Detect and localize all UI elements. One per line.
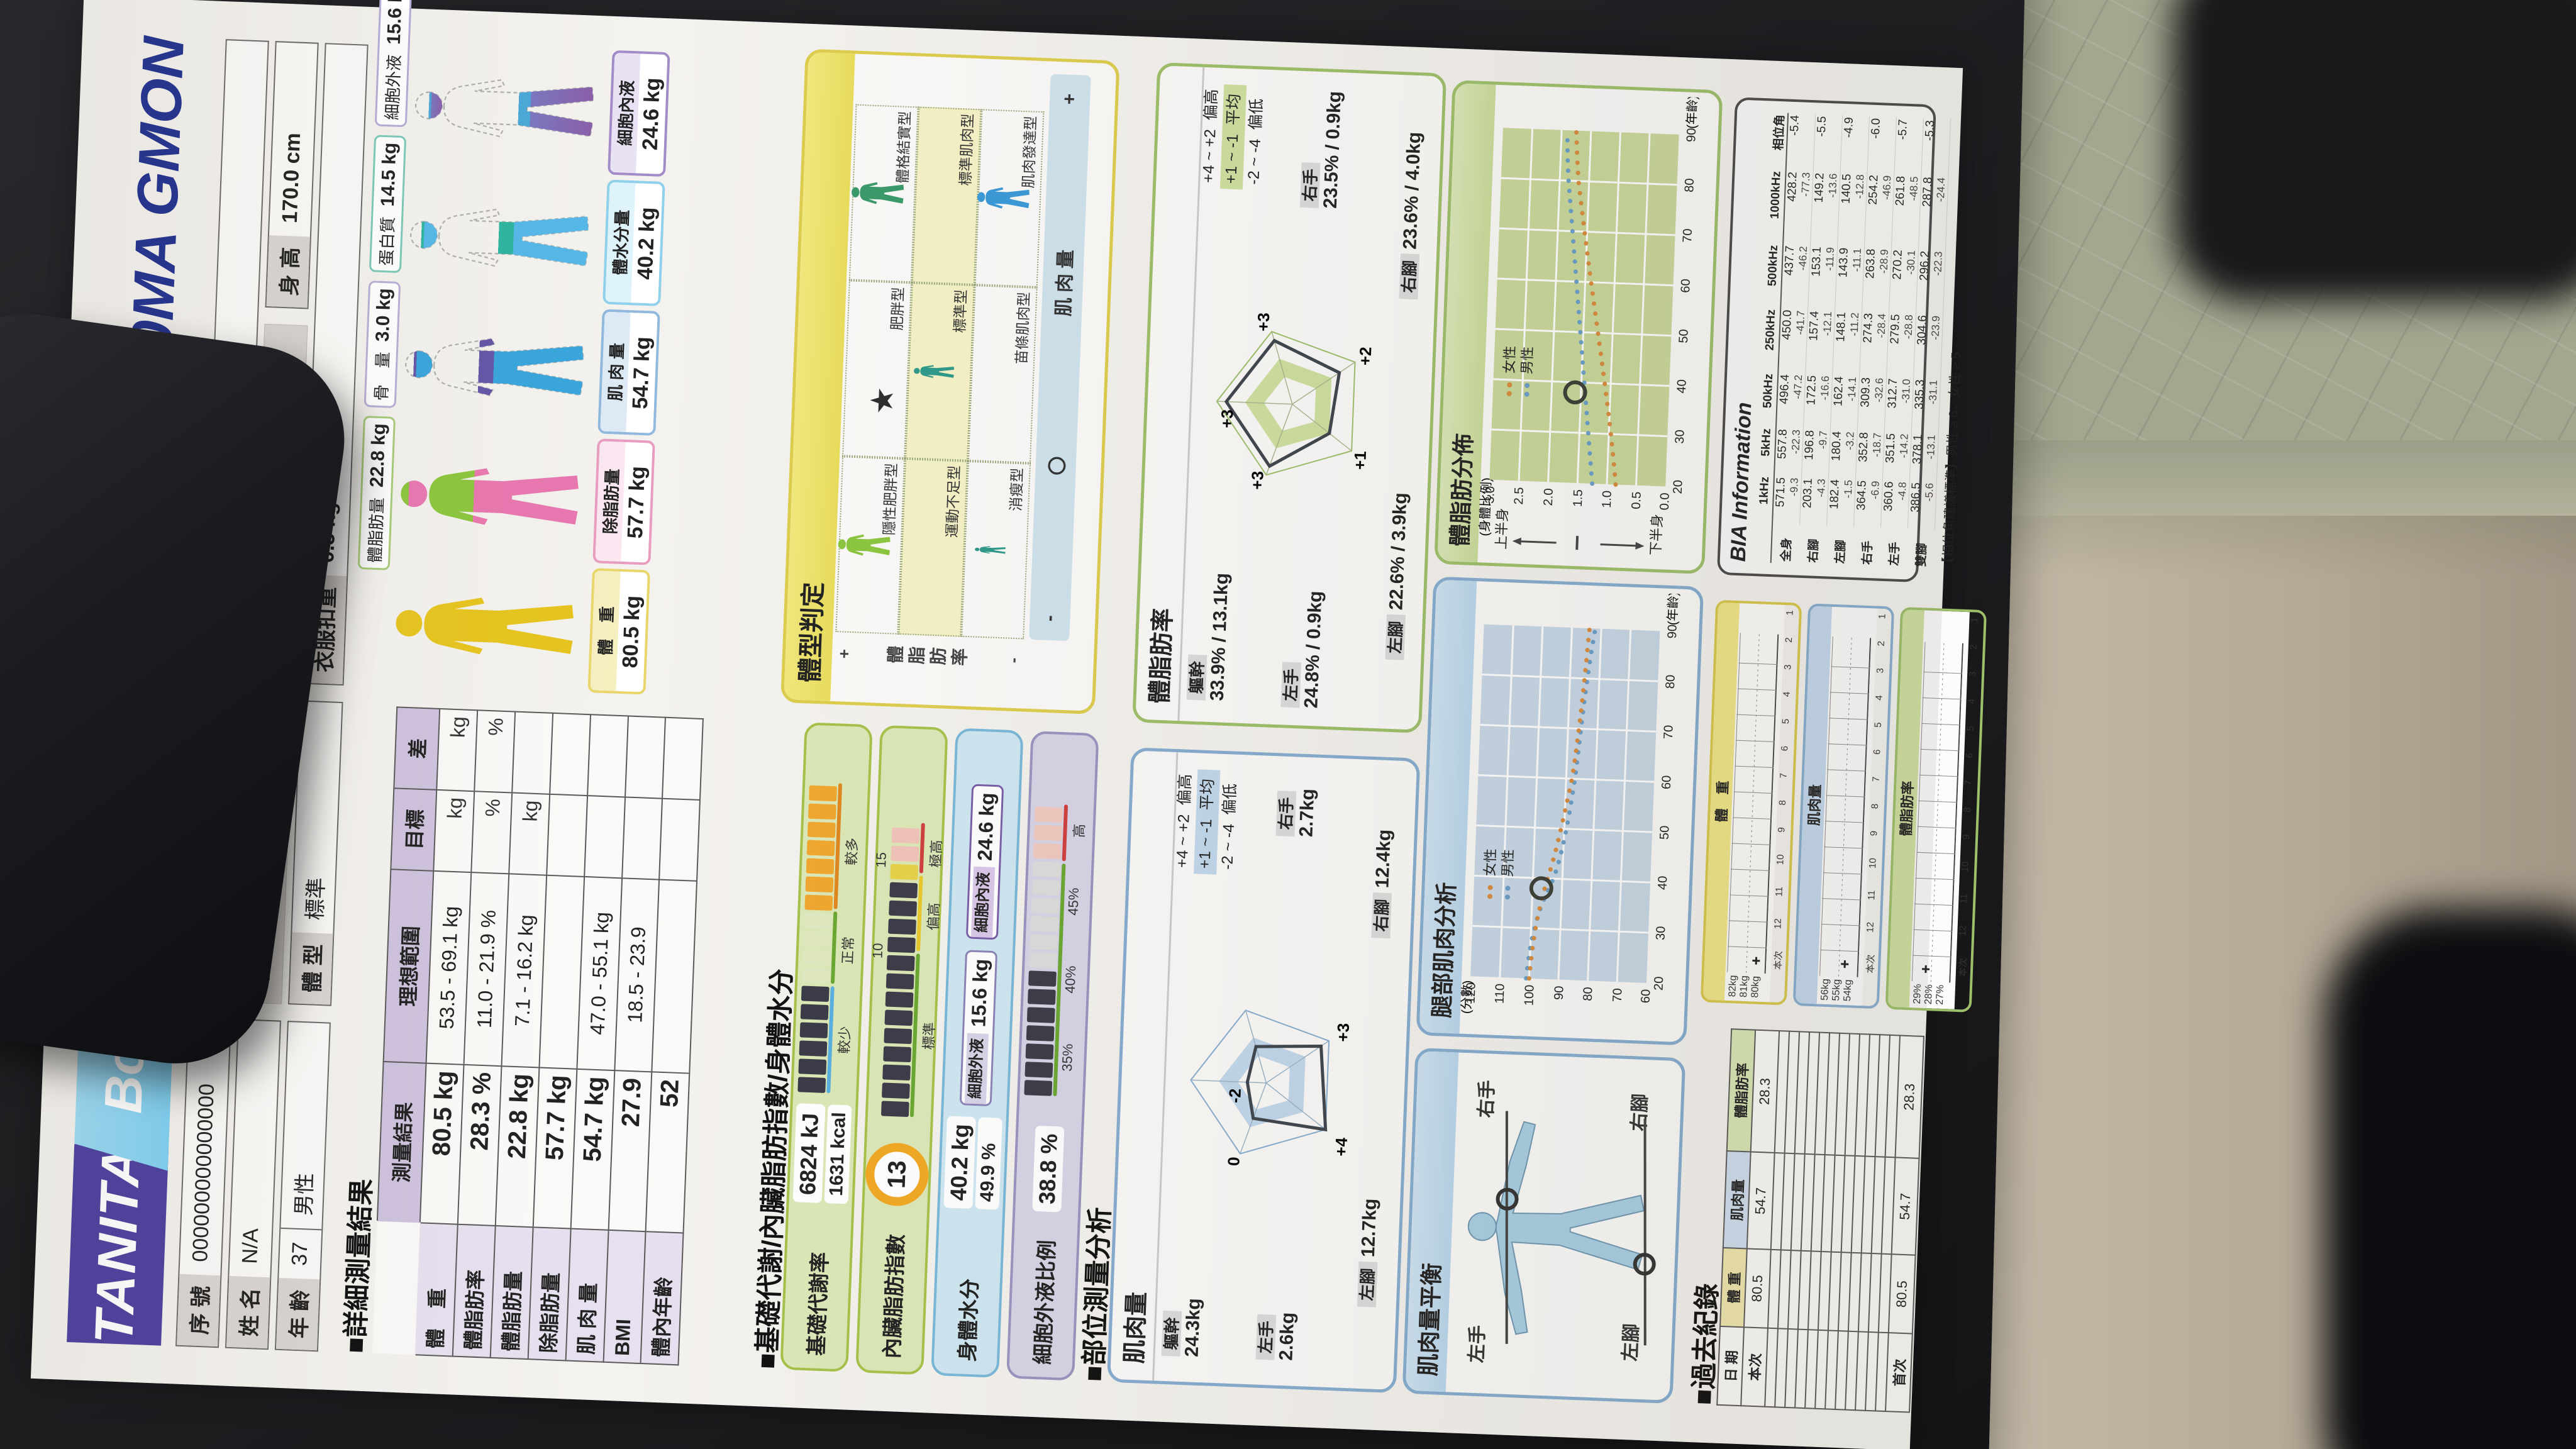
bodytype-value: 標準: [292, 864, 335, 933]
figure-muscle: 肌 肉 量54.7 kg: [401, 299, 660, 438]
ecw-box: 細胞外液15.6 kg: [959, 950, 997, 1106]
history-table: 日 期 體 重 肌肉量 體脂肪率 本次 80.5 54.7 28.3: [1716, 1028, 1924, 1413]
leg-muscle-chart: (分數) 12011010090807060 2030405060708090 …: [1456, 586, 1699, 1041]
svg-text:50: 50: [1677, 329, 1691, 343]
figure-row: 體 重80.5 kg 除脂肪量57.7 kg 肌 肉 量54.7 kg: [391, 40, 670, 697]
detail-table: 測量結果 理想範圍 目標 差 體 重80.5 kg53.5 - 69.1 kgk…: [372, 706, 704, 1365]
bodytype-label: 體 型: [289, 932, 333, 1005]
dark-object-bottom-right: [2324, 908, 2576, 1449]
fatpct-trend-chart: 體脂肪率 29%28%27% 本次121110987654321: [1885, 607, 1987, 1013]
muscle-radar-panel: 肌肉量 +4 ~ +2偏高 +1 ~ -1平均 -2 ~ -4偏低 軀幹24.3…: [1107, 747, 1420, 1393]
fat-radar-chart: +3 +3 +3 +2 +1: [1186, 256, 1398, 553]
water-kg: 40.2 kg: [943, 1116, 976, 1209]
fat-mass-tag: 體脂肪量22.8 kg: [358, 416, 396, 570]
age-label: 年 齡: [276, 1277, 319, 1350]
fat-distribution-panel: 體脂肪分佈 (身體比例) 3.02.52.01.51.00.50.0 上半身 下…: [1434, 80, 1723, 574]
name-value: N/A: [229, 1215, 272, 1277]
col-diff: 差: [394, 707, 440, 789]
svg-text:80: 80: [1663, 675, 1678, 689]
svg-text:80: 80: [1682, 178, 1697, 192]
bmr-kj: 6824 kJ: [793, 1103, 826, 1203]
figure-water: 體水分量40.2 kg: [406, 170, 665, 309]
svg-text:0.5: 0.5: [1629, 491, 1644, 509]
height-value: 170.0 cm: [269, 119, 314, 236]
muscle-trunk-rating: -2: [1225, 1088, 1245, 1103]
water-pct: 49.9 %: [975, 1117, 1002, 1209]
col-range: 理想範圍: [384, 869, 434, 1063]
svg-text:+4: +4: [1331, 1137, 1351, 1157]
svg-text:女性: 女性: [1501, 345, 1518, 374]
muscle-silhouette-icon: [402, 316, 594, 418]
body-type-grid: 隱性肥胖型 ★肥胖型 體格結實型 運動不足型 標準型 標準肌肉型 消瘦型 苗條肌…: [835, 104, 1044, 640]
balance-figure-chart: [1447, 1059, 1674, 1401]
icw-silhouette-icon: [412, 58, 604, 159]
body-type-y-axis: + 體脂肪率 -: [834, 636, 1024, 678]
svg-text:20: 20: [1652, 976, 1666, 991]
muscle-radar-legend: +4 ~ +2偏高 +1 ~ -1平均 -2 ~ -4偏低: [1171, 769, 1243, 875]
svg-text:+3: +3: [1217, 409, 1236, 428]
svg-text:+2: +2: [1355, 347, 1375, 366]
svg-text:20: 20: [1671, 480, 1685, 494]
svg-text:0.0: 0.0: [1658, 492, 1672, 511]
col-result: 測量結果: [377, 1062, 426, 1223]
figure-weight: 體 重80.5 kg: [391, 558, 650, 697]
muscle-radar-chart: -2 0 +3 +4: [1160, 935, 1372, 1231]
svg-text:90: 90: [1552, 985, 1567, 1000]
svg-text:100: 100: [1522, 984, 1536, 1006]
svg-text:30: 30: [1673, 430, 1687, 444]
ecf-ratio-value: 38.8 %: [1032, 1126, 1064, 1213]
svg-text:(年齡): (年齡): [1684, 95, 1700, 129]
svg-text:(年齡): (年齡): [1665, 591, 1681, 625]
svg-text:男性: 男性: [1519, 346, 1536, 374]
fatpct-current-point: [1922, 965, 1929, 973]
leg-balance-line: [1636, 1119, 1654, 1345]
weight-current-point: [1752, 957, 1760, 965]
svg-text:0: 0: [1224, 1157, 1243, 1167]
svg-text:+3: +3: [1248, 470, 1267, 490]
tanita-report-paper: TANITA Body MC-780MA GMON 序 號 0000000000…: [31, 0, 1963, 1449]
svg-text:2.0: 2.0: [1541, 488, 1556, 506]
body-composition-figures: 體脂肪量22.8 kg 骨 量3.0 kg 蛋白質14.5 kg 細胞外液15.…: [353, 38, 780, 701]
water-silhouette-icon: [407, 187, 599, 289]
ffm-silhouette-icon: [397, 446, 589, 547]
weight-trend-chart: 體 重 82kg81kg80kg 本次121110987654321: [1701, 600, 1802, 1006]
svg-text:90: 90: [1684, 128, 1699, 142]
svg-text:+1: +1: [1350, 451, 1370, 470]
icw-box: 細胞內液24.6 kg: [965, 784, 1003, 940]
svg-text:女性: 女性: [1482, 848, 1499, 877]
sex-value: 男性: [280, 1160, 324, 1230]
figure-icw: 細胞內液24.6 kg: [411, 40, 670, 179]
age-value: 37: [279, 1229, 321, 1279]
metabolic-bars: 基礎代謝率 6824 kJ 1631 kcal 較少: [780, 722, 1099, 1380]
svg-text:70: 70: [1680, 228, 1695, 243]
name-field: 姓 名 N/A: [225, 1019, 281, 1350]
svg-text:70: 70: [1611, 988, 1625, 1002]
svg-text:70: 70: [1662, 724, 1676, 739]
svg-text:3.0: 3.0: [1483, 486, 1497, 504]
svg-text:110: 110: [1492, 984, 1507, 1004]
serial-label: 序 號: [177, 1274, 220, 1346]
muscle-balance-panel: 肌肉量平衡 左手 右手 左腳 右腳: [1402, 1048, 1686, 1404]
visceral-fat-ring: 13: [864, 1142, 930, 1207]
svg-text:1.5: 1.5: [1571, 489, 1585, 508]
svg-text:下半身: 下半身: [1648, 514, 1665, 556]
svg-text:40: 40: [1675, 379, 1689, 394]
svg-text:60: 60: [1639, 989, 1653, 1004]
svg-text:上半身: 上半身: [1493, 508, 1511, 550]
brand-text: TANITA: [83, 1145, 153, 1345]
svg-text:80: 80: [1581, 987, 1596, 1001]
fat-radar-legend: +4 ~ +2偏高 +1 ~ -1平均 -2 ~ -4偏低: [1197, 84, 1269, 191]
bia-information-panel: BIA Information 1kHz5kHz50kHz250kHz500kH…: [1717, 97, 1936, 582]
svg-text:1.0: 1.0: [1600, 491, 1614, 509]
svg-text:50: 50: [1658, 825, 1672, 840]
photo-scene: TANITA Body MC-780MA GMON 序 號 0000000000…: [0, 0, 2576, 1449]
svg-text:60: 60: [1679, 279, 1693, 293]
name-label: 姓 名: [226, 1275, 270, 1348]
svg-text:男性: 男性: [1499, 849, 1516, 877]
bone-mass-tag: 骨 量3.0 kg: [364, 280, 401, 408]
ecw-tag: 細胞外液15.6 kg: [375, 0, 413, 128]
history-mini-charts: 體 重 82kg81kg80kg 本次121110987654321 肌肉量 5…: [1701, 600, 1987, 1013]
bia-table: 1kHz5kHz50kHz250kHz500kHz1000kHz相位角 全身57…: [1753, 113, 1951, 569]
body-type-star: ★: [863, 386, 901, 415]
height-label: 身 高: [267, 235, 310, 308]
balance-person-silhouette: [1464, 1119, 1647, 1338]
svg-text:2.5: 2.5: [1512, 487, 1526, 505]
age-field: 年 齡 37 男性: [275, 1021, 331, 1352]
svg-text:60: 60: [1660, 775, 1674, 789]
svg-text:+3: +3: [1333, 1023, 1353, 1042]
serial-value: 000000000000000: [179, 1070, 228, 1275]
tanita-logo: TANITA: [67, 1145, 169, 1346]
svg-text:+3: +3: [1253, 313, 1273, 332]
fat-radar-panel: 體脂肪率 +4 ~ +2偏高 +1 ~ -1平均 -2 ~ -4偏低 軀幹33.…: [1132, 62, 1446, 733]
svg-text:40: 40: [1656, 875, 1670, 890]
svg-text:90: 90: [1665, 625, 1680, 639]
fat-distribution-chart: (身體比例) 3.02.52.01.51.00.50.0 上半身 下半身: [1474, 89, 1718, 569]
svg-text:120: 120: [1463, 982, 1478, 1004]
standard-icon: [908, 360, 962, 383]
col-target: 目標: [391, 788, 436, 870]
body-type-panel: 體型判定 + 體脂肪率 - 隱性肥胖型 ★肥胖型 體格結實型 運動不足型 標準型…: [780, 49, 1120, 714]
muscle-trend-chart: 肌肉量 56kg55kg54kg 本次121110987654321: [1793, 603, 1894, 1009]
weight-silhouette-icon: [392, 575, 585, 677]
figure-ffm: 除脂肪量57.7 kg: [396, 428, 655, 567]
muscle-current-point: [1841, 960, 1848, 968]
thin-icon: [969, 541, 1013, 559]
svg-text:30: 30: [1654, 926, 1668, 940]
bmr-kcal: 1631 kcal: [824, 1104, 852, 1204]
dark-object-top-right: [2173, 0, 2576, 302]
leg-muscle-panel: 腿部肌肉分析 (分數) 12011010090807060 2030405060…: [1416, 576, 1704, 1045]
height-field: 身 高 170.0 cm: [265, 41, 319, 309]
protein-tag: 蛋白質14.5 kg: [369, 135, 406, 274]
